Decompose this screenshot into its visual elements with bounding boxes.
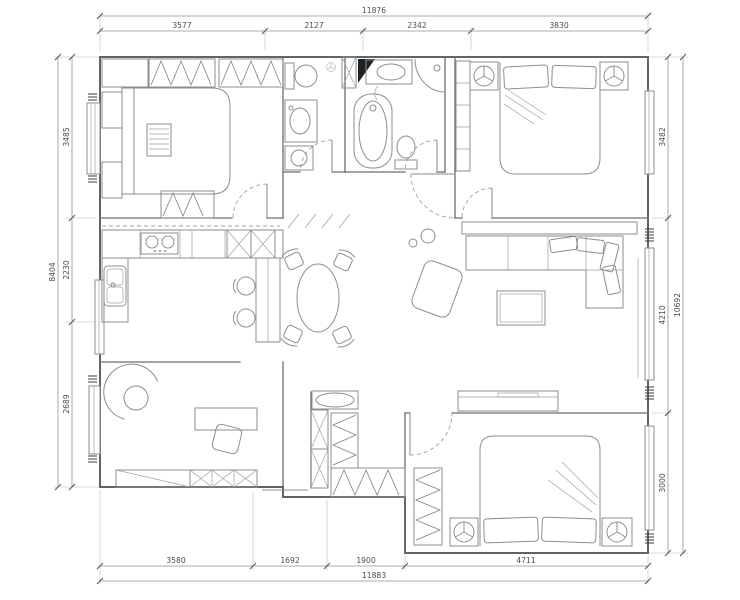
dim-top-seg-2: 2127 [304, 21, 323, 30]
bedside-table [147, 124, 171, 156]
floor-plan-drawing: 11876 3577 2127 2342 3830 3580 1692 1900… [0, 0, 740, 600]
window-bedroom-top-right [645, 91, 654, 174]
windows [87, 91, 654, 543]
door-bedroom-top-right [462, 188, 492, 218]
dim-bottom-total: 11883 [362, 571, 386, 580]
bathroom-1 [285, 63, 336, 171]
bed [122, 88, 230, 194]
bedroom-top-right [456, 61, 628, 174]
door-bathroom-2 [405, 140, 437, 172]
bar-counter [233, 258, 280, 342]
pillow [503, 65, 548, 89]
door-entry [411, 174, 455, 218]
bathtub [354, 94, 392, 168]
dimension-bottom: 3580 1692 1900 4711 11883 [97, 490, 651, 584]
dim-bottom-seg-1: 3580 [166, 556, 185, 565]
dim-right-seg-1: 3482 [658, 127, 667, 146]
window-living-room [638, 248, 654, 380]
dimension-top: 11876 3577 2127 2342 3830 [97, 6, 651, 52]
dim-right-seg-3: 3000 [658, 473, 667, 492]
counter [102, 230, 283, 258]
ottoman [410, 259, 465, 320]
low-cabinet [116, 470, 257, 487]
decor [421, 229, 435, 243]
ceiling-fan-icon [604, 66, 624, 86]
bedroom-bottom-right [414, 436, 632, 546]
dim-top-seg-4: 3830 [549, 21, 568, 30]
window-bedroom-top-left [87, 103, 100, 174]
counter-left [102, 258, 128, 322]
dim-top-seg-3: 2342 [407, 21, 426, 30]
kitchen-sink [104, 266, 126, 306]
pillow [552, 65, 597, 89]
floor-plan-canvas: 11876 3577 2127 2342 3830 3580 1692 1900… [0, 0, 740, 600]
dim-right-total: 10692 [673, 293, 682, 317]
window-study [89, 386, 100, 454]
dim-right-seg-2: 4210 [658, 305, 667, 324]
pillow [484, 517, 539, 543]
bathroom-2 [342, 57, 445, 169]
fridge-cabinets [227, 230, 275, 258]
dresser [458, 391, 558, 411]
dining-chair [280, 324, 304, 348]
dining-chair [281, 247, 305, 271]
dim-left-seg-2: 2230 [62, 260, 71, 279]
wardrobe [414, 468, 442, 545]
bar-stool [237, 277, 255, 295]
bar-stool [237, 309, 255, 327]
dim-bottom-seg-2: 1692 [280, 556, 299, 565]
duct-shaft [342, 57, 356, 88]
vanity-sink [285, 100, 317, 142]
wardrobe [161, 191, 214, 218]
console-cabinet [462, 222, 637, 234]
decor [409, 239, 417, 247]
dim-bottom-seg-4: 4711 [516, 556, 535, 565]
dim-top-total: 11876 [362, 6, 386, 15]
wall-insulation-ticks [88, 94, 654, 543]
corner-shower [415, 59, 445, 92]
ceiling-fan-icon [474, 66, 494, 86]
door-bathroom-1 [300, 140, 332, 172]
toilet [285, 63, 317, 89]
dim-left-total: 8404 [48, 262, 57, 281]
ceiling-fan-icon [607, 522, 627, 542]
bedroom-top-left [102, 59, 283, 218]
living-room [409, 222, 637, 411]
door-bedroom-top-left [233, 184, 267, 218]
door-bedroom-bottom-right [410, 413, 452, 455]
window-bedroom-bottom-right [645, 426, 654, 530]
desk-chair [211, 423, 243, 455]
floor-transition-marks [288, 214, 350, 228]
coffee-table [497, 291, 545, 325]
side-cabinet [102, 162, 122, 198]
ceiling-fan-icon [454, 522, 474, 542]
armchair [96, 356, 166, 423]
dining-area [280, 214, 356, 349]
window-kitchen [95, 280, 104, 354]
double-bed [480, 436, 600, 546]
side-cabinet [102, 92, 122, 128]
wardrobe [456, 61, 470, 171]
dim-top-seg-1: 3577 [172, 21, 191, 30]
ceiling-lamp-icon [327, 63, 336, 72]
shelf-basin [312, 391, 358, 409]
cabinet-column [311, 410, 328, 488]
dining-chair [331, 325, 355, 349]
study-room [96, 356, 257, 487]
dim-left-seg-1: 3485 [62, 127, 71, 146]
dim-left-seg-3: 2689 [62, 394, 71, 413]
dining-chair [332, 248, 356, 272]
storage-hall [311, 391, 405, 497]
stove [141, 233, 178, 254]
double-bed [500, 62, 600, 174]
desk [195, 408, 257, 430]
dim-bottom-seg-3: 1900 [356, 556, 375, 565]
doors [233, 140, 492, 455]
pillow [542, 517, 597, 543]
washing-machine [285, 146, 313, 170]
dining-table [297, 264, 339, 332]
kitchen [102, 230, 283, 342]
